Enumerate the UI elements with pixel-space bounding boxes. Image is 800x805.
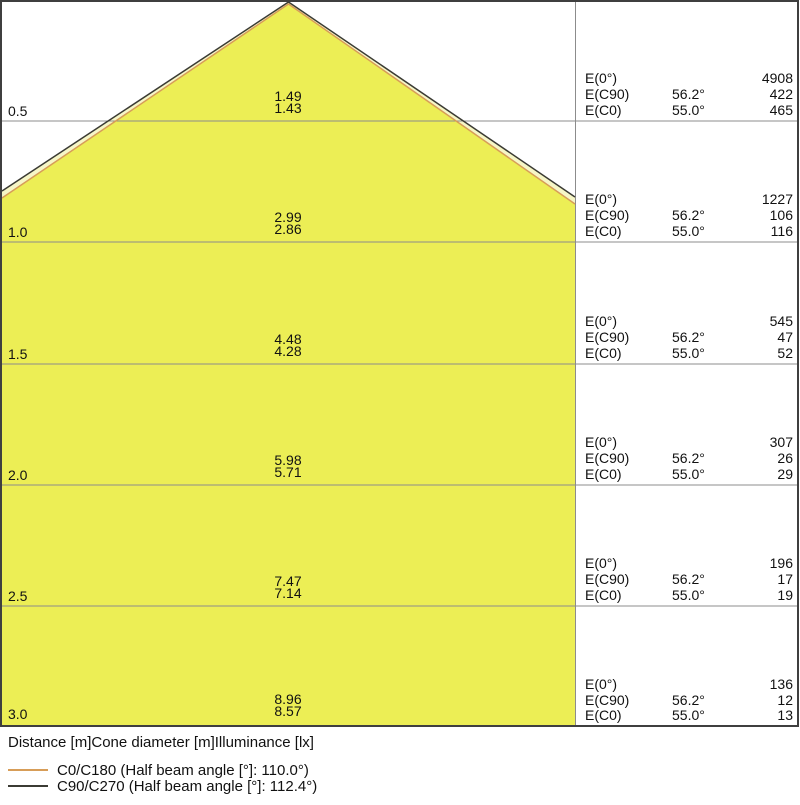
illuminance-e0-value: 307 [770, 434, 794, 450]
distance-label: 1.5 [8, 346, 28, 362]
illuminance-ec90-angle: 56.2° [672, 692, 705, 708]
illuminance-ec90-label: E(C90) [585, 450, 629, 466]
illuminance-ec90-label: E(C90) [585, 571, 629, 587]
cone-diameter-c0-value: 2.86 [274, 221, 301, 237]
illuminance-e0-value: 545 [770, 313, 794, 329]
distance-label: 1.0 [8, 224, 28, 240]
cone-diameter-c0-value: 5.71 [274, 464, 301, 480]
legend: C0/C180 (Half beam angle [°]: 110.0°) C9… [8, 762, 317, 795]
illuminance-ec90-label: E(C90) [585, 329, 629, 345]
illuminance-ec90-value: 26 [777, 450, 793, 466]
cone-diameter-c0-value: 1.43 [274, 100, 301, 116]
illuminance-ec90-angle: 56.2° [672, 450, 705, 466]
illuminance-ec0-angle: 55.0° [672, 223, 705, 239]
illuminance-ec0-label: E(C0) [585, 345, 622, 361]
illuminance-ec0-angle: 55.0° [672, 345, 705, 361]
cone-diameter-c0-value: 7.14 [274, 585, 301, 601]
illuminance-e0-value: 4908 [762, 70, 793, 86]
illuminance-ec0-angle: 55.0° [672, 587, 705, 603]
illuminance-ec0-angle: 55.0° [672, 707, 705, 723]
illuminance-ec0-label: E(C0) [585, 587, 622, 603]
cone-diameter-c0-value: 8.57 [274, 703, 301, 719]
illuminance-ec0-label: E(C0) [585, 707, 622, 723]
distance-label: 3.0 [8, 706, 28, 722]
illuminance-ec90-value: 422 [770, 86, 794, 102]
illuminance-e0-label: E(0°) [585, 555, 617, 571]
distance-label: 0.5 [8, 103, 28, 119]
illuminance-ec90-value: 47 [777, 329, 793, 345]
illuminance-ec90-label: E(C90) [585, 207, 629, 223]
illuminance-e0-label: E(0°) [585, 70, 617, 86]
illuminance-e0-label: E(0°) [585, 191, 617, 207]
illuminance-ec90-label: E(C90) [585, 692, 629, 708]
illuminance-ec0-value: 13 [777, 707, 793, 723]
illuminance-ec0-label: E(C0) [585, 223, 622, 239]
distance-label: 2.0 [8, 467, 28, 483]
illuminance-ec0-angle: 55.0° [672, 466, 705, 482]
illuminance-e0-label: E(0°) [585, 676, 617, 692]
cone-diameter-c0-value: 4.28 [274, 343, 301, 359]
illuminance-e0-label: E(0°) [585, 313, 617, 329]
illuminance-ec0-label: E(C0) [585, 102, 622, 118]
light-cone-diagram: 0.5 1.49 1.43 E(0°) 4908 E(C90) 56.2° 42… [0, 0, 800, 800]
illuminance-ec90-angle: 56.2° [672, 86, 705, 102]
legend-label-c90-c270: C90/C270 (Half beam angle [°]: 112.4°) [57, 778, 317, 795]
illuminance-e0-value: 196 [770, 555, 794, 571]
legend-label-c0-c180: C0/C180 (Half beam angle [°]: 110.0°) [57, 762, 309, 779]
illuminance-ec90-angle: 56.2° [672, 329, 705, 345]
illuminance-ec0-value: 52 [777, 345, 793, 361]
illuminance-ec0-label: E(C0) [585, 466, 622, 482]
illuminance-ec90-label: E(C90) [585, 86, 629, 102]
axis-header: Distance [m]Cone diameter [m]Illuminance… [8, 734, 314, 751]
illuminance-ec0-value: 116 [771, 223, 794, 239]
illuminance-e0-value: 136 [770, 676, 794, 692]
illuminance-ec90-value: 106 [770, 207, 794, 223]
illuminance-ec0-value: 29 [777, 466, 793, 482]
illuminance-ec0-value: 19 [777, 587, 793, 603]
illuminance-ec90-angle: 56.2° [672, 571, 705, 587]
illuminance-ec0-value: 465 [770, 102, 794, 118]
illuminance-ec0-angle: 55.0° [672, 102, 705, 118]
distance-label: 2.5 [8, 588, 28, 604]
illuminance-e0-label: E(0°) [585, 434, 617, 450]
illuminance-ec90-value: 12 [777, 692, 793, 708]
illuminance-ec90-value: 17 [777, 571, 793, 587]
illuminance-e0-value: 1227 [762, 191, 793, 207]
illuminance-ec90-angle: 56.2° [672, 207, 705, 223]
